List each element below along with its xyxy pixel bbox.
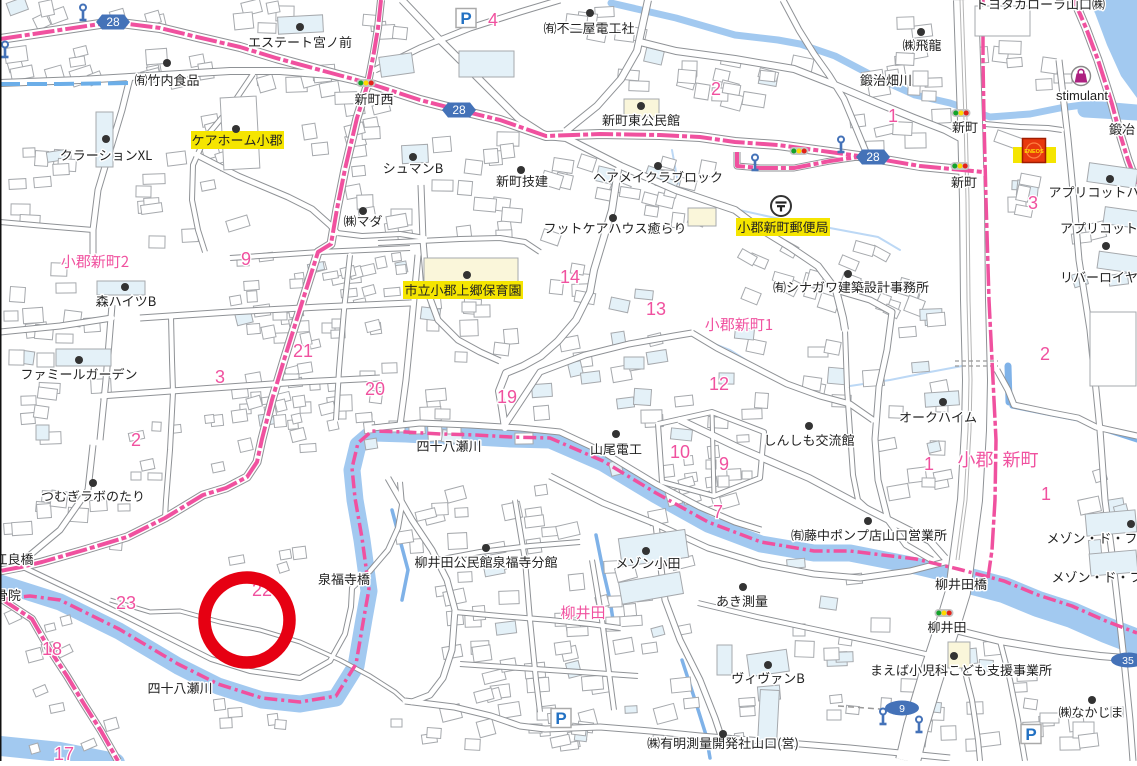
svg-text:9: 9 <box>241 249 251 269</box>
svg-text:ENEOS: ENEOS <box>1024 149 1044 155</box>
svg-text:1: 1 <box>888 106 898 126</box>
svg-text:P: P <box>555 709 566 728</box>
svg-text:P: P <box>1025 725 1036 744</box>
svg-text:23: 23 <box>116 593 136 613</box>
svg-text:19: 19 <box>497 387 517 407</box>
svg-text:1: 1 <box>1041 484 1051 504</box>
svg-text:3: 3 <box>215 367 225 387</box>
svg-text:10: 10 <box>670 442 690 462</box>
svg-text:4: 4 <box>488 10 498 30</box>
svg-text:3: 3 <box>1028 193 1038 213</box>
svg-text:2: 2 <box>131 430 141 450</box>
svg-text:21: 21 <box>293 341 313 361</box>
svg-text:2: 2 <box>711 79 721 99</box>
svg-text:17: 17 <box>54 744 74 761</box>
svg-text:P: P <box>460 9 471 28</box>
svg-text:9: 9 <box>719 454 729 474</box>
svg-text:35: 35 <box>1122 655 1134 667</box>
svg-text:12: 12 <box>709 374 729 394</box>
svg-text:7: 7 <box>713 502 723 522</box>
svg-text:2: 2 <box>1040 344 1050 364</box>
svg-text:14: 14 <box>560 267 580 287</box>
svg-text:18: 18 <box>42 639 62 659</box>
svg-text:20: 20 <box>365 379 385 399</box>
svg-text:28: 28 <box>452 103 466 117</box>
svg-text:stimulant: stimulant <box>1056 88 1108 103</box>
svg-text:13: 13 <box>646 299 666 319</box>
svg-text:28: 28 <box>866 150 880 164</box>
svg-text:28: 28 <box>106 15 120 29</box>
svg-text:1: 1 <box>924 454 934 474</box>
svg-text:9: 9 <box>899 703 905 715</box>
